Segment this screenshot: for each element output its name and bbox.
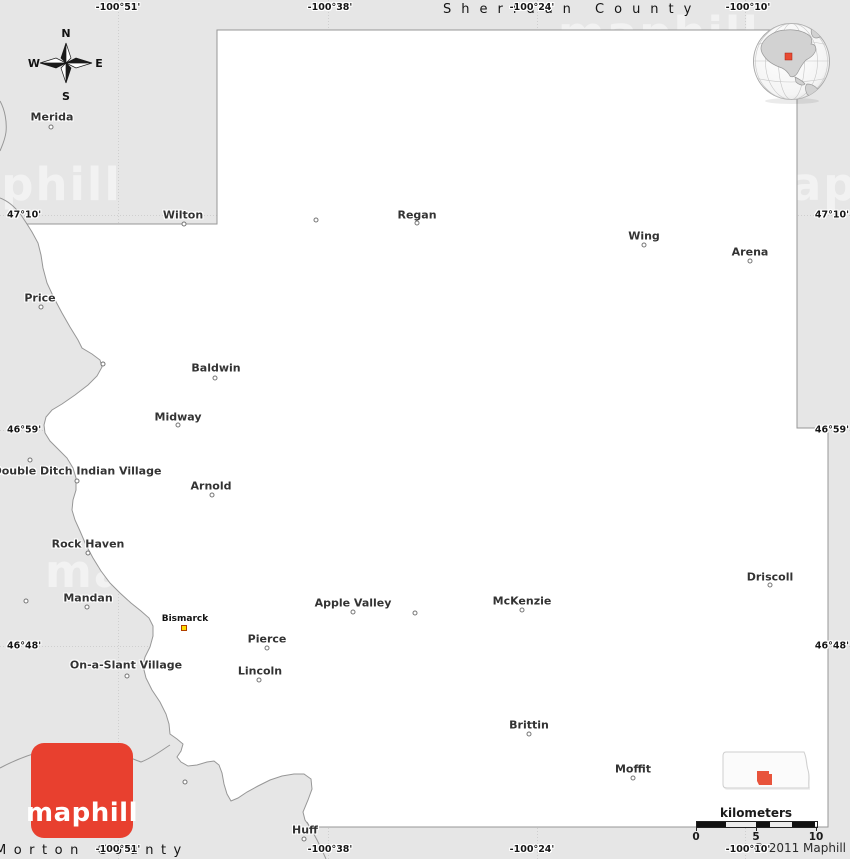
town-marker-arena[interactable] (748, 259, 753, 264)
town-marker-baldwin[interactable] (213, 376, 218, 381)
latitude-label-right-1: 47°10' (815, 210, 849, 221)
town-marker-mckenzie[interactable] (520, 608, 525, 613)
town-marker-rock-haven[interactable] (86, 551, 91, 556)
neighbor-county-label-bottom: Morton County (0, 843, 189, 858)
neighbor-county-label-top: Sheridan County (443, 2, 701, 17)
town-marker-moffit[interactable] (631, 776, 636, 781)
latitude-label-right-3: 46°48' (815, 641, 849, 652)
town-label-brittin[interactable]: Brittin (509, 719, 549, 732)
town-marker-mandan[interactable] (85, 605, 90, 610)
map-page: maphillmaphillmaphillmaphillmaphillmaphi… (0, 0, 850, 859)
town-label-huff[interactable]: Huff (292, 824, 318, 837)
town-label-arena[interactable]: Arena (732, 246, 769, 259)
latitude-label-left-1: 47°10' (7, 210, 41, 221)
town-label-arnold[interactable]: Arnold (191, 480, 232, 493)
town-label-on-a-slant-village[interactable]: On-a-Slant Village (70, 659, 182, 672)
town-label-apple-valley[interactable]: Apple Valley (315, 597, 392, 610)
labels-overlay: Sheridan County Morton County MeridaWilt… (0, 0, 850, 859)
longitude-label-top-2: -100°38' (308, 2, 353, 13)
town-marker-regan[interactable] (415, 221, 420, 226)
longitude-label-top-1: -100°51' (96, 2, 141, 13)
town-marker-merida[interactable] (49, 125, 54, 130)
town-label-double-ditch-indian-village[interactable]: Double Ditch Indian Village (0, 465, 161, 478)
settlement-marker-4[interactable] (24, 599, 29, 604)
settlement-marker-5[interactable] (413, 611, 418, 616)
town-label-price[interactable]: Price (24, 292, 55, 305)
town-marker-price[interactable] (39, 305, 44, 310)
town-label-wilton[interactable]: Wilton (163, 209, 203, 222)
town-label-bismarck[interactable]: Bismarck (162, 614, 209, 624)
latitude-label-right-2: 46°59' (815, 425, 849, 436)
town-marker-driscoll[interactable] (768, 583, 773, 588)
town-marker-arnold[interactable] (210, 493, 215, 498)
settlement-marker-6[interactable] (183, 780, 188, 785)
town-marker-pierce[interactable] (265, 646, 270, 651)
longitude-label-top-3: -100°24' (510, 2, 555, 13)
town-label-lincoln[interactable]: Lincoln (238, 665, 282, 678)
settlement-marker-3[interactable] (28, 458, 33, 463)
town-label-mckenzie[interactable]: McKenzie (493, 595, 552, 608)
town-label-rock-haven[interactable]: Rock Haven (52, 538, 125, 551)
town-marker-bismarck[interactable] (181, 625, 187, 631)
town-marker-wilton[interactable] (182, 222, 187, 227)
longitude-label-bottom-1: -100°51' (96, 844, 141, 855)
town-label-pierce[interactable]: Pierce (248, 633, 287, 646)
town-marker-on-a-slant-village[interactable] (125, 674, 130, 679)
town-marker-apple-valley[interactable] (351, 610, 356, 615)
town-marker-lincoln[interactable] (257, 678, 262, 683)
longitude-label-bottom-3: -100°24' (510, 844, 555, 855)
town-marker-wing[interactable] (642, 243, 647, 248)
town-label-mandan[interactable]: Mandan (63, 592, 112, 605)
settlement-marker-2[interactable] (101, 362, 106, 367)
latitude-label-left-2: 46°59' (7, 425, 41, 436)
longitude-label-bottom-4: -100°10' (726, 844, 771, 855)
town-label-baldwin[interactable]: Baldwin (191, 362, 240, 375)
town-marker-double-ditch-indian-village[interactable] (75, 479, 80, 484)
latitude-label-left-3: 46°48' (7, 641, 41, 652)
longitude-label-bottom-2: -100°38' (308, 844, 353, 855)
town-label-moffit[interactable]: Moffit (615, 763, 651, 776)
longitude-label-top-4: -100°10' (726, 2, 771, 13)
settlement-marker-1[interactable] (314, 218, 319, 223)
town-label-wing[interactable]: Wing (628, 230, 660, 243)
town-marker-huff[interactable] (302, 837, 307, 842)
town-marker-brittin[interactable] (527, 732, 532, 737)
town-marker-midway[interactable] (176, 423, 181, 428)
town-label-merida[interactable]: Merida (31, 111, 74, 124)
